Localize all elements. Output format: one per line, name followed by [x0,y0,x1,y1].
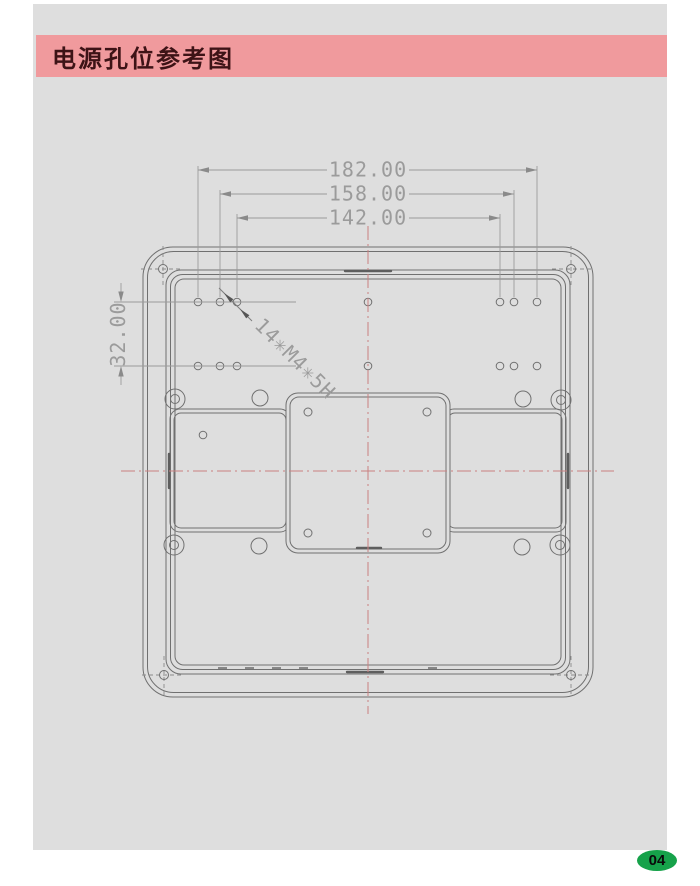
dim-label-158: 158.00 [329,182,407,206]
page-number: 04 [649,852,666,869]
dimension-arrowheads [118,167,537,376]
dim-label-142: 142.00 [329,206,407,230]
page-number-badge: 04 [637,850,677,871]
technical-drawing: 182.00 158.00 142.00 32.00 14✳M4✳5H [0,0,700,886]
dim-label-32: 32.00 [106,301,130,366]
hole-annotation-label: 14✳M4✳5H [250,313,341,404]
hole-annotation-leader [219,288,252,321]
dim-label-182: 182.00 [329,158,407,182]
